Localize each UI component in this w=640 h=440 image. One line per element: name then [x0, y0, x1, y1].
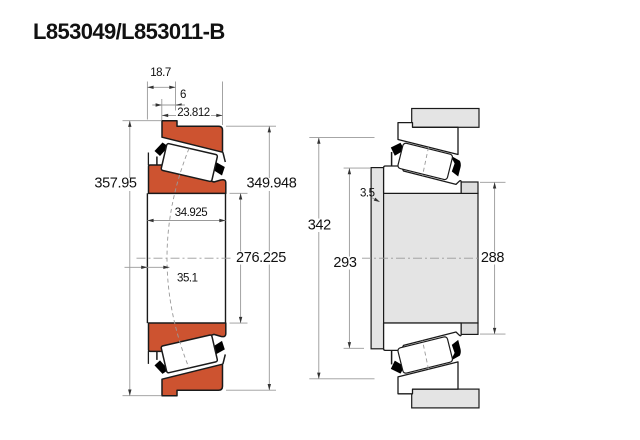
svg-text:276.225: 276.225: [236, 250, 286, 266]
svg-text:288: 288: [481, 250, 504, 266]
svg-text:6: 6: [180, 89, 186, 101]
svg-text:23.812: 23.812: [177, 107, 210, 119]
svg-text:349.948: 349.948: [247, 176, 297, 192]
svg-text:18.7: 18.7: [150, 67, 171, 79]
svg-text:L853049/L853011-B: L853049/L853011-B: [33, 19, 225, 44]
svg-text:293: 293: [333, 255, 356, 271]
svg-text:342: 342: [308, 218, 331, 234]
svg-text:357.95: 357.95: [94, 176, 137, 192]
svg-text:35.1: 35.1: [177, 273, 198, 285]
svg-text:3.5: 3.5: [360, 187, 375, 199]
svg-text:34.925: 34.925: [175, 207, 208, 219]
